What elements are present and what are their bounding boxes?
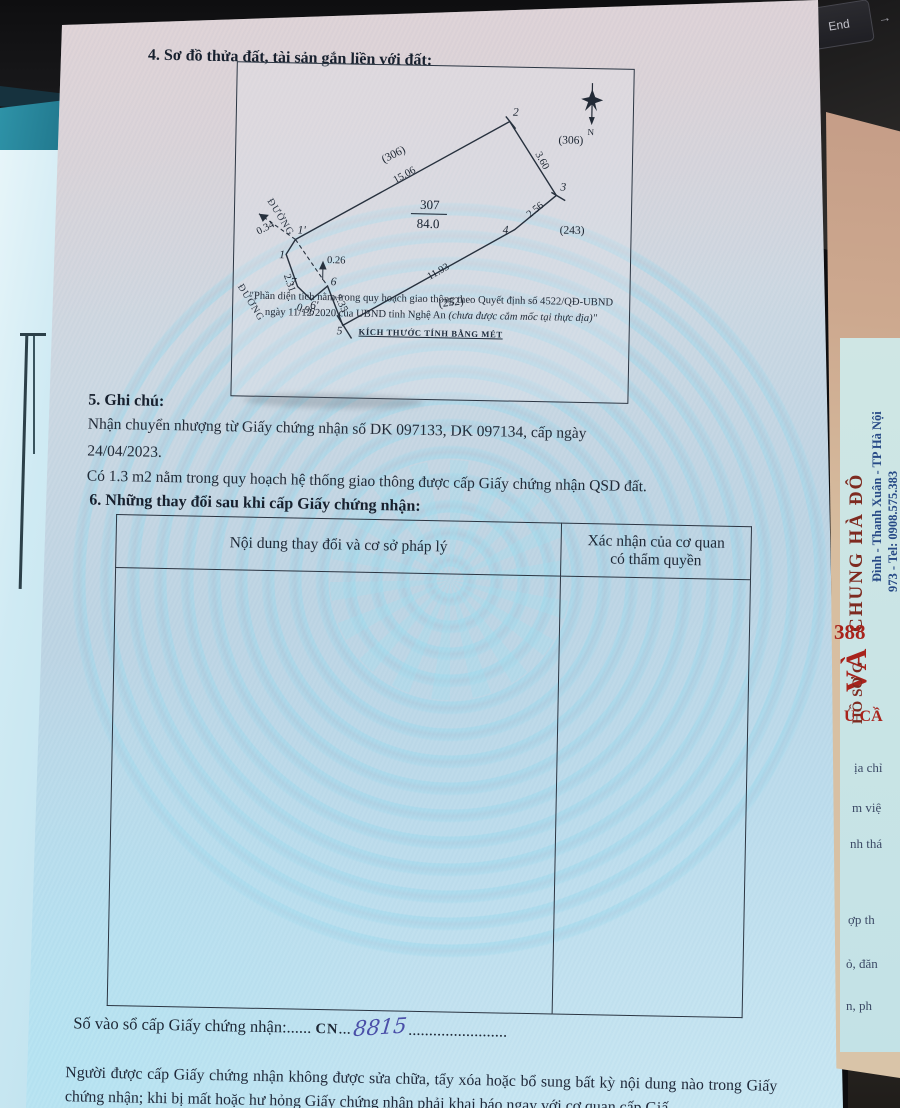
changes-col2-header-line1: Xác nhận của cơ quan [563,532,750,554]
section5-line2: 24/04/2023. [87,442,162,461]
footer-notice: Người được cấp Giấy chứng nhận không đượ… [65,1061,778,1108]
side-card-frag5: ỏ, đăn [846,956,878,972]
side-card-frag1: ịa chỉ [854,760,883,776]
plot-number: 307 [420,197,440,212]
vertex-4: 4 [503,224,509,236]
section5-line1: Nhận chuyển nhượng từ Giấy chứng nhận số… [88,416,587,444]
neighbor-306-top: (306) [380,144,408,166]
plot-number-area: 307 84.0 [411,197,448,232]
side-card-frag6: n, ph [846,998,872,1014]
side-card-frag2: m việ [852,800,881,816]
dim-15-06: 15.06 [392,165,418,186]
section5-title: 5. Ghi chú: [88,392,164,411]
page-content: 4. Sơ đồ thửa đất, tài sản gắn liền với … [0,0,900,1108]
changes-table: Nội dung thay đổi và cơ sở pháp lý Xác n… [107,514,752,1018]
changes-table-empty-row [107,568,750,1018]
side-card-frag3: nh thá [850,836,882,852]
dim-11-93: 11.93 [426,262,452,283]
vertex-2: 2 [513,107,519,119]
serial-dots-mid: ... [338,1018,351,1037]
dim-0-26: 0.26 [327,255,346,266]
serial-leader2: ........................ [408,1020,507,1041]
dim-2-56: 2.56 [525,200,546,220]
changes-col2-header-line2: có thẩm quyền [562,550,749,572]
section5-line3: Có 1.3 m2 nằm trong quy hoạch hệ thống g… [87,467,647,496]
vertex-6: 6 [331,276,337,288]
side-card-phone: 973 - Tel: 0908.575.383 [886,471,900,592]
cadastral-diagram-box: 2 3 4 5 6 6' 7 1 1' 15.06 3.60 2.56 11.9… [230,61,634,404]
plot-area: 84.0 [417,216,440,231]
side-card-frag4: ợp th [848,912,875,928]
serial-leader1: ...... [286,1017,311,1036]
neighbor-243: (243) [560,225,585,237]
photo-of-land-certificate: End → 4. Sơ đồ thửa đất, tài sản gắn liề… [0,0,900,1108]
north-letter: N [587,127,594,137]
dim-0-34: 0.34 [255,219,277,237]
parcel-diagram-svg: 2 3 4 5 6 6' 7 1 1' 15.06 3.60 2.56 11.9… [231,62,633,403]
changes-col1-header: Nội dung thay đổi và cơ sở pháp lý [116,515,562,577]
serial-prefix: CN [315,1021,338,1037]
vertex-3: 3 [559,182,566,194]
side-card-red-number: 388 [834,620,866,645]
side-card-address: Đình - Thanh Xuân - TP Hà Nội [870,411,885,582]
side-card-strip: CHUNG HÀ ĐÔ Đình - Thanh Xuân - TP Hà Nộ… [826,112,900,1078]
serial-number-handwritten: 8815 [352,1013,408,1041]
serial-label: Số vào sổ cấp Giấy chứng nhận: [73,1013,287,1036]
changes-col2-header: Xác nhận của cơ quan có thẩm quyền [561,523,752,580]
changes-col1-cell [107,568,560,1014]
side-card-brand: CHUNG HÀ ĐÔ [846,473,868,632]
section6-title: 6. Những thay đổi sau khi cấp Giấy chứng… [89,492,421,516]
vertex-1: 1 [279,249,285,261]
dim-arrow-026 [320,262,326,280]
neighbor-306-right: (306) [558,134,583,146]
changes-col2-cell [552,576,750,1018]
north-compass: N [580,83,603,137]
vertex-1p: 1' [297,224,306,236]
serial-row: Số vào sổ cấp Giấy chứng nhận:...... CN.… [73,1009,507,1041]
neighbor-parcel-labels: (306) (306) (243) (252) [377,131,587,313]
side-card-red-caps: U CẦ [844,708,883,726]
